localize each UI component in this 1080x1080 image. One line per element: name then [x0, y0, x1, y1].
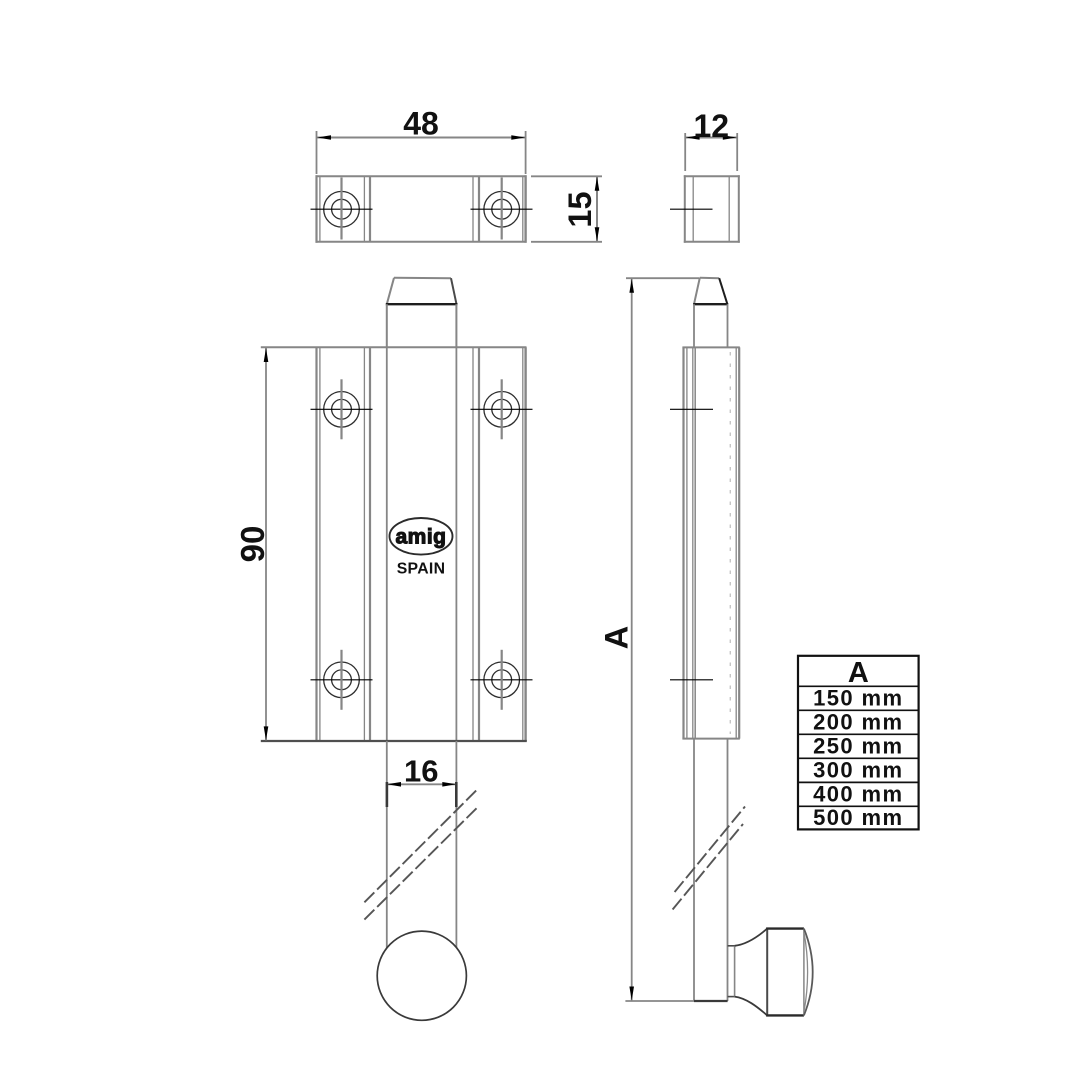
- svg-text:amig: amig: [395, 526, 446, 549]
- svg-text:12: 12: [694, 108, 730, 144]
- svg-text:200 mm: 200 mm: [813, 710, 903, 735]
- svg-text:15: 15: [562, 191, 598, 227]
- svg-text:300 mm: 300 mm: [813, 758, 903, 783]
- svg-text:A: A: [848, 657, 869, 689]
- svg-text:48: 48: [403, 106, 439, 142]
- svg-text:90: 90: [234, 526, 271, 563]
- svg-text:16: 16: [404, 753, 438, 788]
- svg-text:A: A: [599, 626, 635, 649]
- svg-text:150 mm: 150 mm: [813, 686, 903, 711]
- svg-text:SPAIN: SPAIN: [397, 560, 446, 577]
- svg-text:250 mm: 250 mm: [813, 734, 903, 759]
- svg-text:500 mm: 500 mm: [813, 805, 903, 830]
- svg-text:400 mm: 400 mm: [813, 782, 903, 807]
